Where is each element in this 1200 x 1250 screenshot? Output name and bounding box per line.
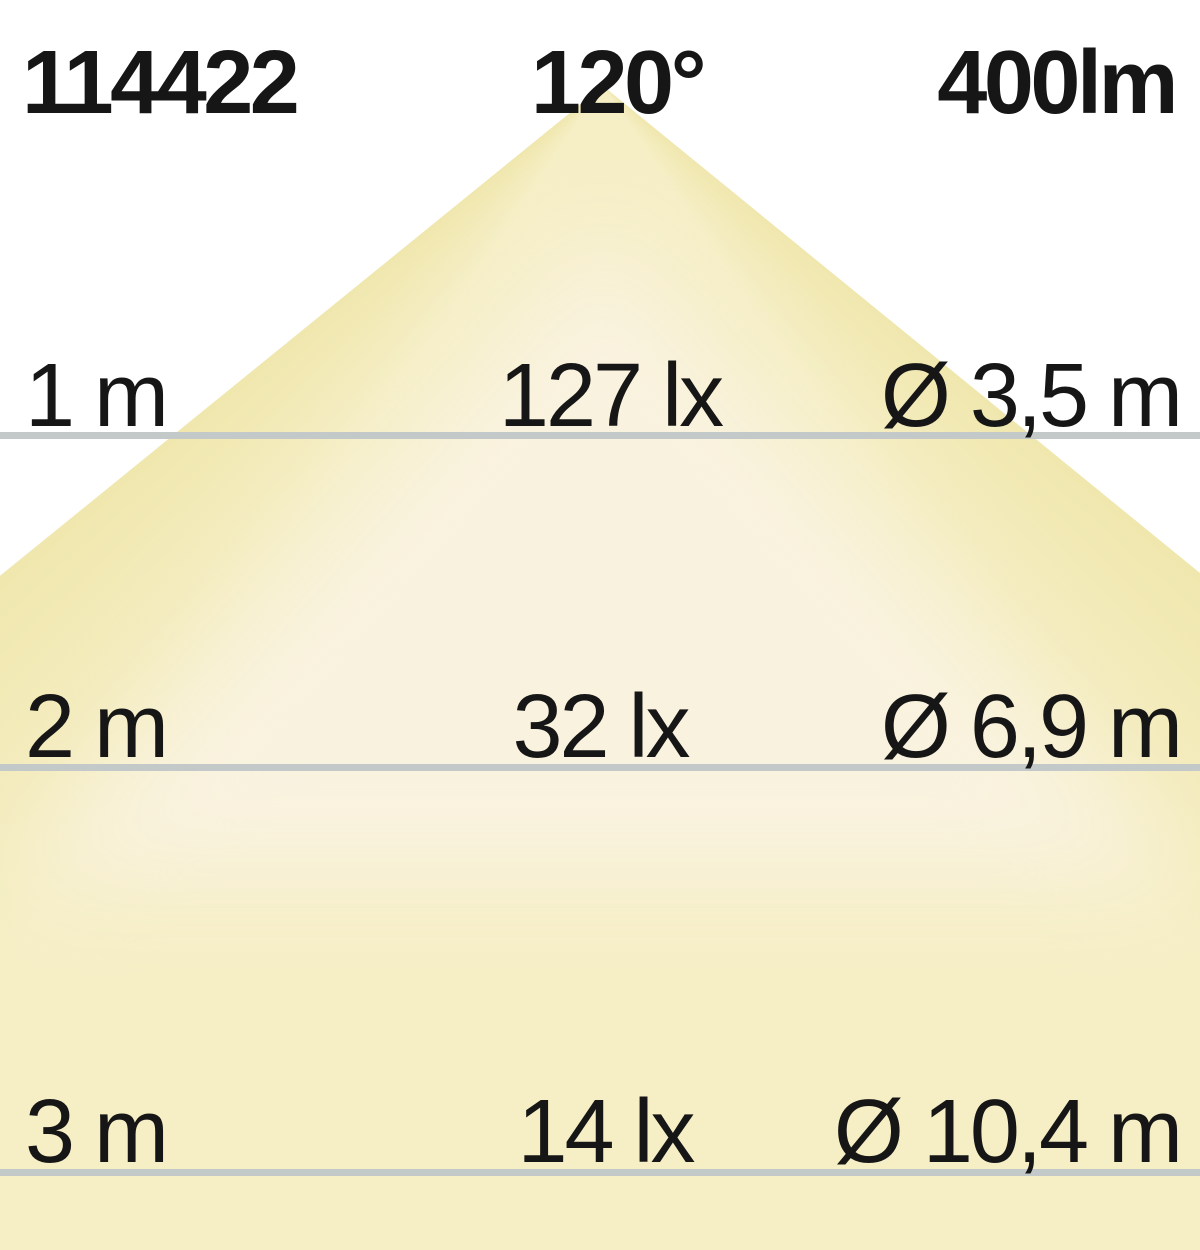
distance-label-2m: 2 m [25, 682, 166, 772]
beam-diameter-3m: Ø 10,4 m [834, 1087, 1180, 1177]
beam-angle: 120° [531, 38, 703, 128]
beam-inner-glow [0, 0, 1200, 1250]
beam-diameter-1m: Ø 3,5 m [881, 351, 1180, 441]
light-beam-diagram: 114422 120° 400lm 1 m 127 lx Ø 3,5 m 2 m… [0, 0, 1200, 1250]
distance-label-1m: 1 m [25, 351, 166, 441]
beam-cone [0, 0, 1200, 1250]
beam-diameter-2m: Ø 6,9 m [881, 682, 1180, 772]
distance-label-3m: 3 m [25, 1087, 166, 1177]
illuminance-value-3m: 14 lx [517, 1087, 692, 1177]
luminous-flux: 400lm [937, 38, 1175, 128]
illuminance-value-2m: 32 lx [512, 682, 687, 772]
beam-inner-glow-wrapper [0, 0, 1200, 1250]
illuminance-value-1m: 127 lx [499, 351, 721, 441]
article-number: 114422 [22, 38, 296, 128]
